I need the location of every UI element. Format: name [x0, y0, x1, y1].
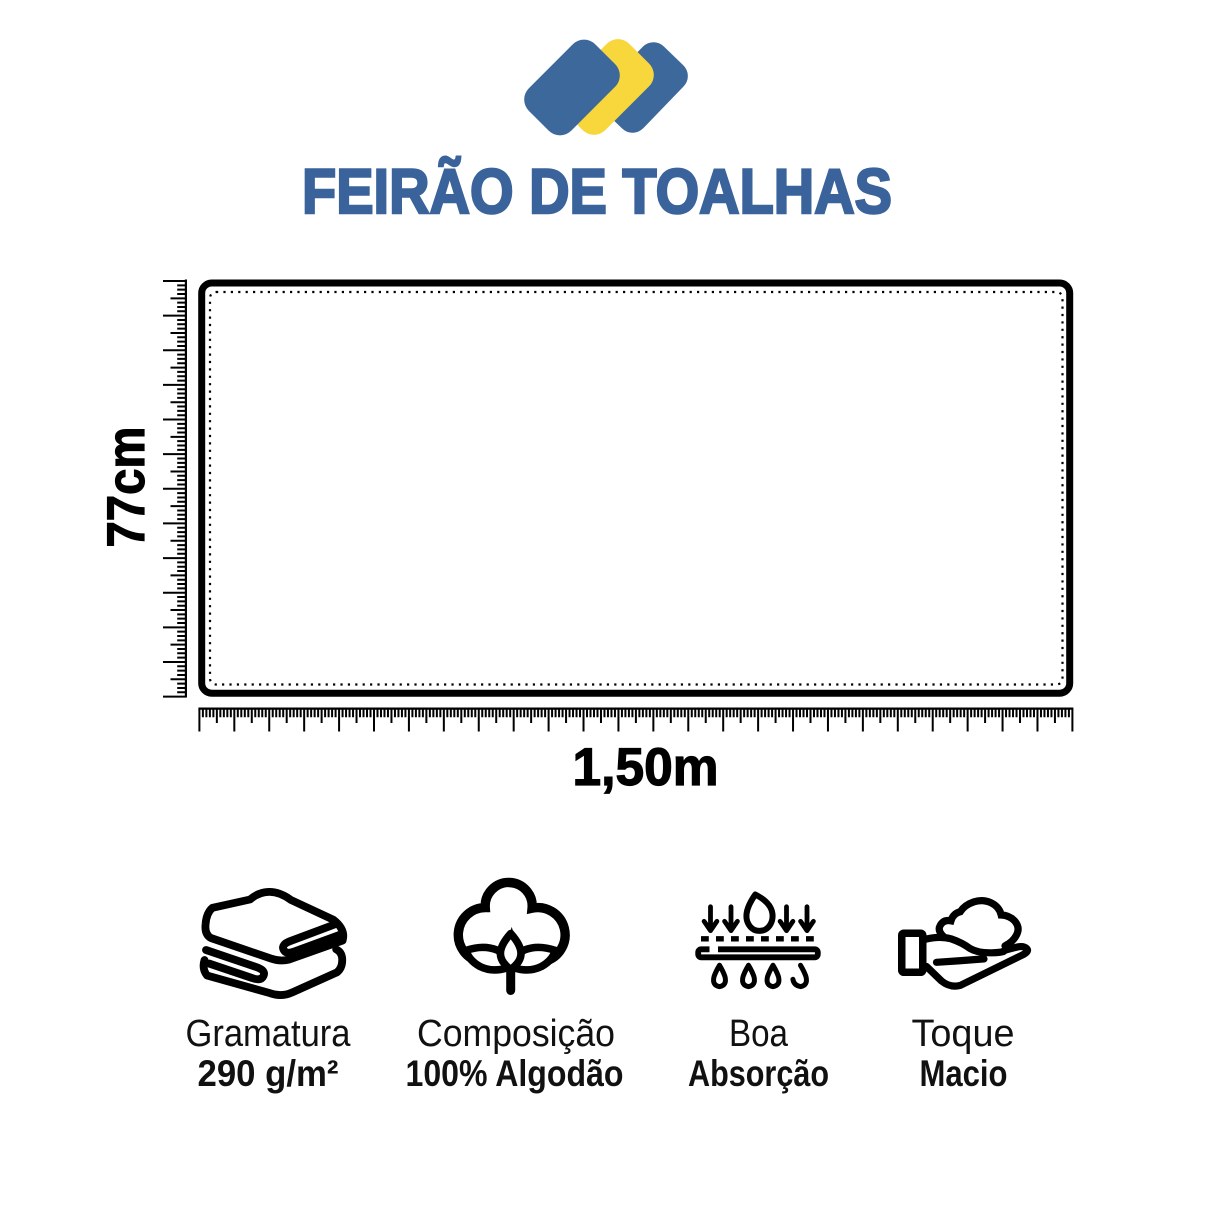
- svg-text:FEIRÃO DE TOALHAS: FEIRÃO DE TOALHAS: [302, 156, 892, 227]
- svg-text:Boa: Boa: [729, 1013, 789, 1055]
- svg-text:Absorção: Absorção: [688, 1053, 829, 1094]
- svg-text:Gramatura: Gramatura: [186, 1013, 352, 1055]
- svg-text:Composição: Composição: [417, 1013, 615, 1055]
- svg-text:1,50m: 1,50m: [573, 738, 719, 797]
- svg-text:77cm: 77cm: [97, 427, 156, 548]
- svg-text:100% Algodão: 100% Algodão: [406, 1053, 624, 1094]
- svg-text:290 g/m²: 290 g/m²: [198, 1053, 339, 1094]
- svg-text:Macio: Macio: [920, 1053, 1008, 1094]
- svg-text:Toque: Toque: [912, 1013, 1015, 1055]
